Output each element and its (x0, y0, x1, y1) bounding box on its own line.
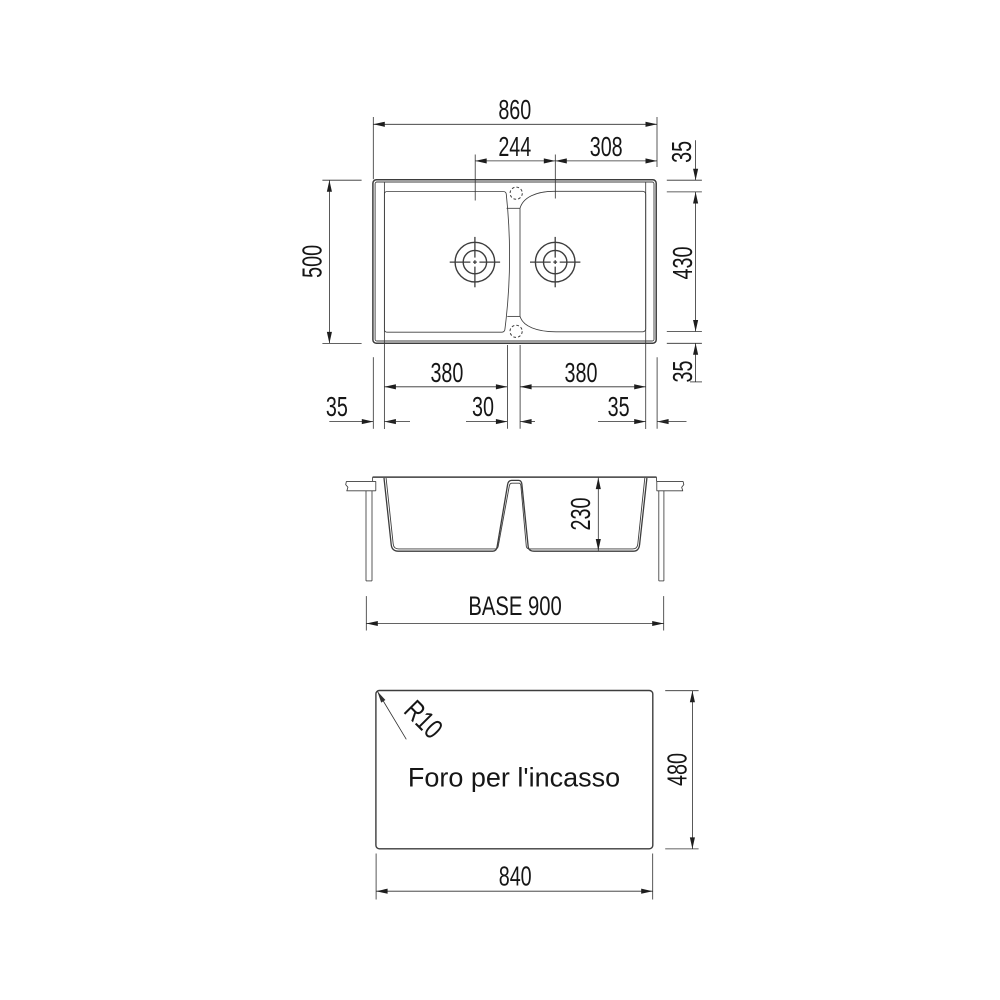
svg-text:35: 35 (668, 361, 699, 383)
svg-text:480: 480 (662, 753, 693, 786)
svg-text:840: 840 (499, 861, 532, 892)
svg-text:35: 35 (326, 392, 348, 423)
svg-text:Foro per l'incasso: Foro per l'incasso (408, 762, 620, 792)
svg-text:860: 860 (498, 95, 531, 126)
svg-text:BASE 900: BASE 900 (468, 591, 561, 622)
svg-text:230: 230 (565, 498, 596, 531)
svg-text:244: 244 (498, 132, 531, 163)
svg-text:380: 380 (430, 358, 463, 389)
svg-text:35: 35 (608, 392, 630, 423)
svg-text:430: 430 (668, 247, 699, 280)
svg-text:30: 30 (472, 392, 494, 423)
svg-text:500: 500 (297, 245, 328, 278)
svg-text:380: 380 (565, 358, 598, 389)
svg-text:308: 308 (590, 132, 623, 163)
svg-text:35: 35 (666, 141, 697, 163)
